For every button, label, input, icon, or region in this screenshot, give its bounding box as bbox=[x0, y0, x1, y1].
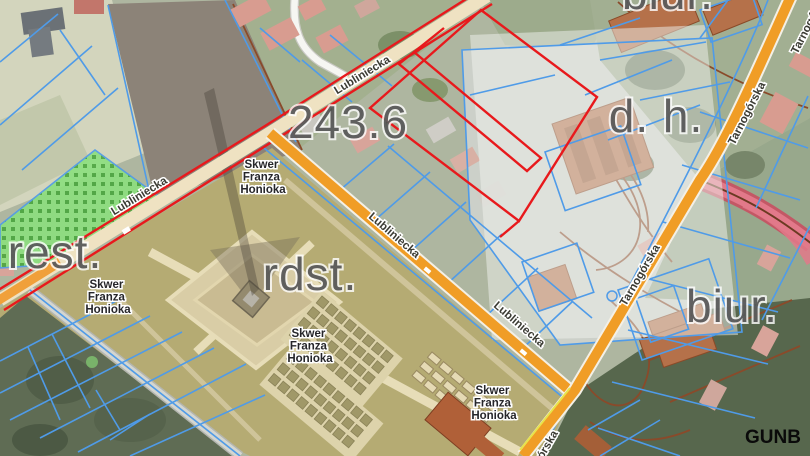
map-svg: 243.6 d. h. rdst. rest. biur. biur. Lubl… bbox=[0, 0, 810, 456]
label-radiostacja: rdst. bbox=[263, 248, 357, 300]
label-dom-handlowy: d. h. bbox=[609, 90, 704, 142]
poi-label-skwer-4: Skwer Franza Honioka bbox=[471, 385, 517, 422]
label-biurowiec-right: biur. bbox=[686, 280, 778, 332]
survey-symbol bbox=[607, 291, 617, 301]
label-elevation: 243.6 bbox=[288, 96, 408, 148]
poi-label-skwer-3: Skwer Franza Honioka bbox=[287, 328, 333, 365]
map-canvas[interactable]: 243.6 d. h. rdst. rest. biur. biur. Lubl… bbox=[0, 0, 810, 456]
watermark-gunb: GUNB bbox=[745, 427, 801, 448]
label-restauracja: rest. bbox=[8, 226, 102, 278]
poi-label-skwer-2: Skwer Franza Honioka bbox=[85, 279, 131, 316]
label-biurowiec-top: biur. bbox=[622, 0, 714, 19]
poi-label-skwer-1: Skwer Franza Honioka bbox=[240, 159, 286, 196]
